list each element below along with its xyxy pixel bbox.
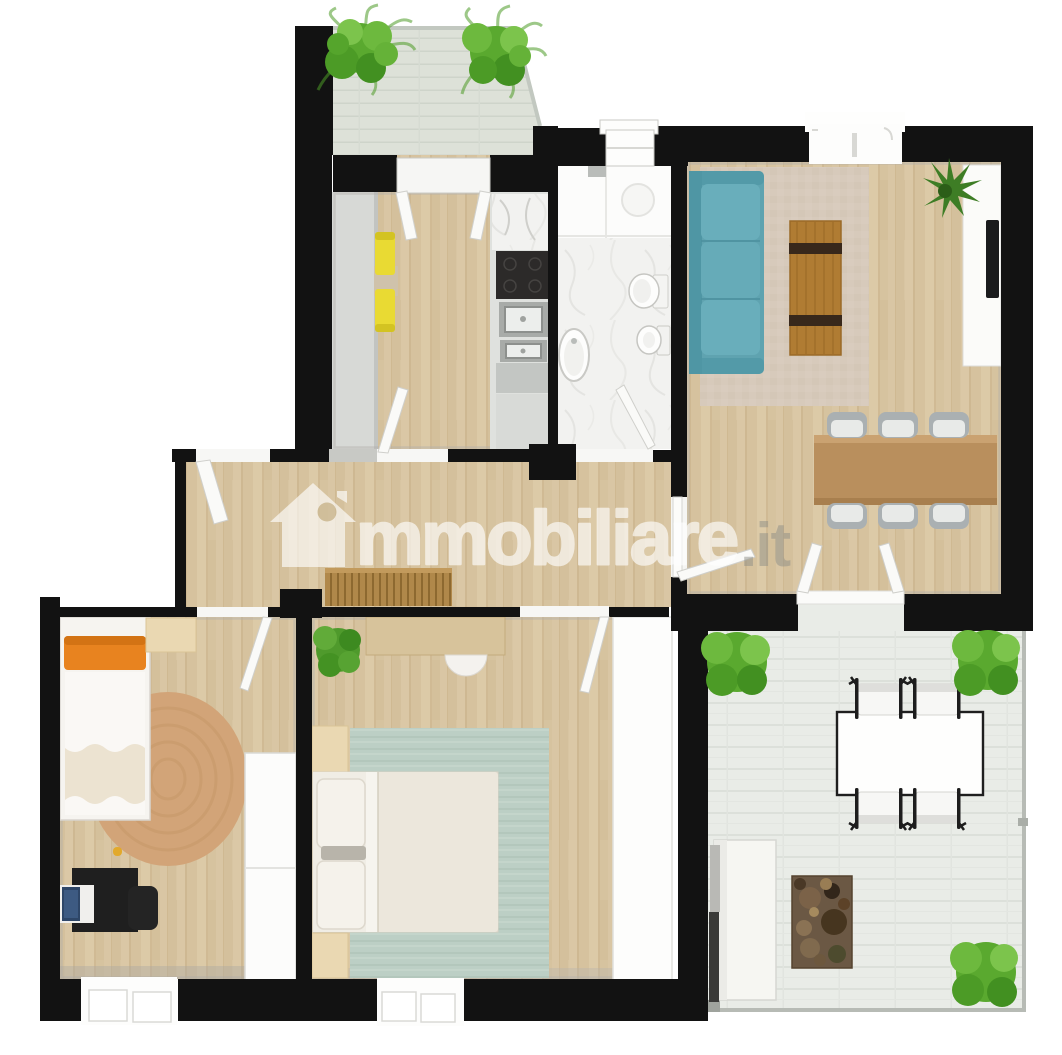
svg-text:mmobiliare: mmobiliare (356, 496, 737, 581)
svg-text:.it: .it (740, 511, 790, 580)
